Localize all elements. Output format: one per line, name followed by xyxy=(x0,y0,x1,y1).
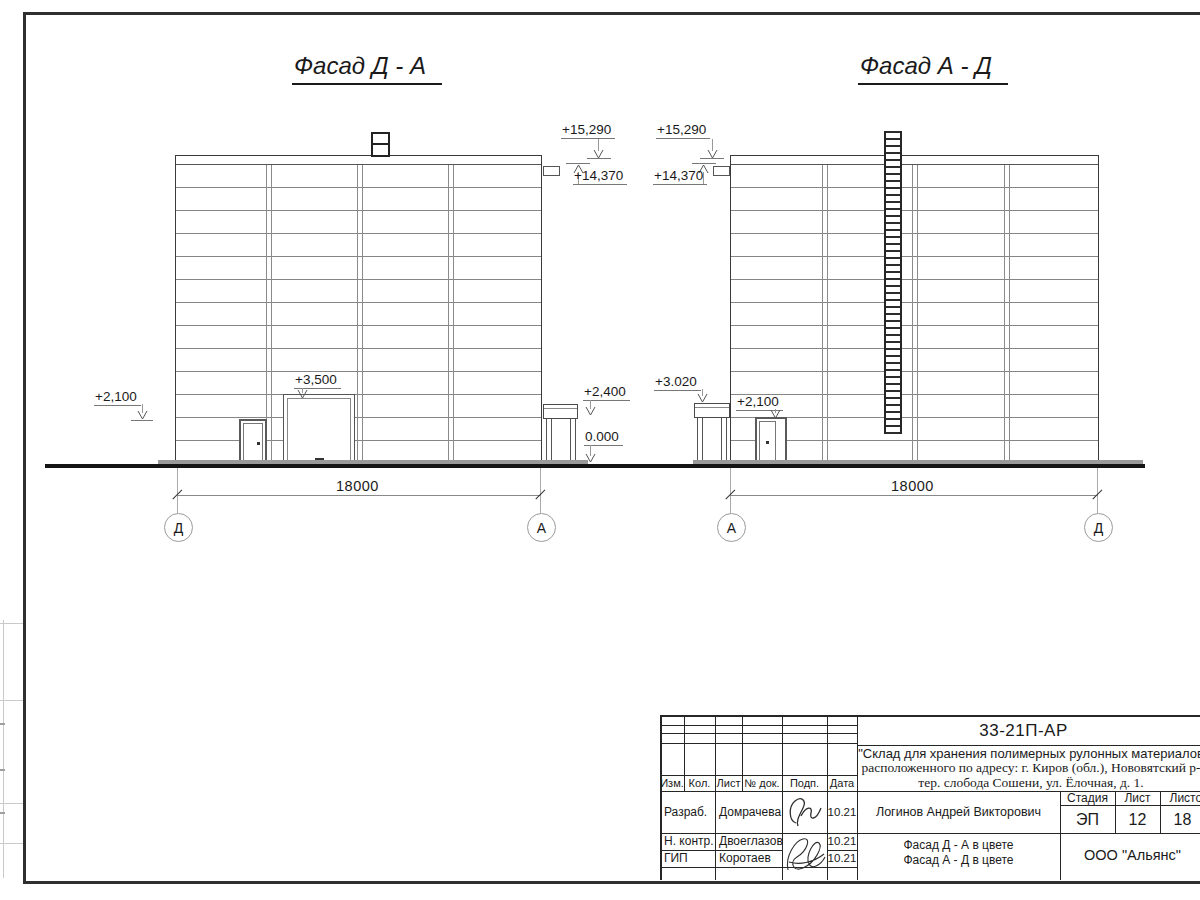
dimension-value: 18000 xyxy=(336,478,379,494)
level-mark: +15,290 xyxy=(561,122,615,139)
level-mark: +2,400 xyxy=(583,384,630,401)
roof-ladder xyxy=(884,131,902,434)
level-line xyxy=(587,158,611,159)
level-arrow-icon xyxy=(297,390,308,399)
stage-value: ЭП xyxy=(1060,805,1115,833)
axis-bubble: Д xyxy=(1084,513,1113,542)
panel-joint xyxy=(448,165,454,466)
side-stamp-line xyxy=(3,620,4,878)
axis-bubble: А xyxy=(717,513,746,542)
level-mark: +3.020 xyxy=(654,374,701,391)
extension-line xyxy=(730,468,731,513)
extension-line xyxy=(177,468,178,513)
signature xyxy=(786,795,826,831)
rev-header-doc: № док. xyxy=(742,775,782,791)
door-leaf xyxy=(243,423,263,464)
gate xyxy=(283,394,355,466)
ground-line xyxy=(45,464,1145,468)
project-name-line2: расположенного по адресу: г. Киров (обл.… xyxy=(857,760,1200,775)
level-arrow-icon xyxy=(697,394,708,403)
door-handle xyxy=(766,441,769,444)
drawing-sheet: Фасад Д - А Фасад А - Д xyxy=(0,0,1200,900)
axis-bubble: Д xyxy=(164,513,193,542)
level-line xyxy=(131,420,153,421)
sheets-header: Листов xyxy=(1160,791,1200,805)
signer-role: Разраб. xyxy=(661,793,718,831)
side-stamp-line xyxy=(0,700,23,701)
signer-name: Двоеглазов xyxy=(716,833,785,850)
panel-joint xyxy=(357,165,363,466)
panel-joint xyxy=(912,165,918,466)
signer-date: 10.21 xyxy=(827,833,857,850)
signer-name: Домрачева xyxy=(716,793,785,831)
level-arrow-icon xyxy=(585,407,596,416)
level-mark: 0.000 xyxy=(584,429,623,446)
rev-header-kol: Кол. xyxy=(684,775,715,791)
facade-left-building xyxy=(175,155,542,467)
canopy-post xyxy=(570,414,576,464)
dimension-value: 18000 xyxy=(891,478,934,494)
dimension-line xyxy=(177,495,541,496)
rooftop-unit-line xyxy=(373,143,388,145)
signer-date: 10.21 xyxy=(827,850,857,867)
signature xyxy=(783,834,829,878)
sheet-value: 12 xyxy=(1115,805,1160,833)
rev-header-izm: Изм. xyxy=(660,775,684,791)
facade-left-title: Фасад Д - А xyxy=(292,52,442,85)
sheet-name-line2: Фасад А - Д в цвете xyxy=(858,851,1059,869)
level-mark: +2,100 xyxy=(94,389,141,406)
company-name: ООО "Альянс" xyxy=(1060,833,1200,878)
level-arrow-icon xyxy=(137,411,148,420)
side-stamp-line xyxy=(0,843,23,844)
project-name-line3: тер. слобода Сошени, ул. Ёлочная, д. 1. xyxy=(857,775,1200,790)
facade-right-title: Фасад А - Д xyxy=(858,52,1008,85)
rev-header-data: Дата xyxy=(827,775,857,791)
side-stamp-mark xyxy=(0,769,5,771)
signer-role: Н. контр. xyxy=(661,833,718,850)
doc-number: 33-21П-АР xyxy=(857,716,1190,745)
vent-pipe xyxy=(543,166,560,176)
approver-name: Логинов Андрей Викторович xyxy=(858,792,1059,832)
sheet-header: Лист xyxy=(1115,791,1160,805)
level-mark: +14,370 xyxy=(573,168,627,185)
level-arrow-icon xyxy=(585,454,596,463)
side-stamp-mark xyxy=(0,723,5,725)
sheets-value: 18 xyxy=(1160,805,1200,833)
panel-joint xyxy=(1004,165,1010,466)
extension-line xyxy=(1097,468,1098,513)
canopy-post xyxy=(697,413,703,464)
side-stamp-mark xyxy=(0,812,5,814)
extension-line xyxy=(540,468,541,513)
stage-header: Стадия xyxy=(1060,791,1115,805)
level-arrow-icon xyxy=(770,410,781,419)
project-name-line1: "Склад для хранения полимерных рулонных … xyxy=(857,746,1200,761)
dimension-line xyxy=(730,495,1098,496)
signer-date: 10.21 xyxy=(827,793,857,831)
side-stamp-line xyxy=(0,623,23,624)
canopy-slab-line xyxy=(544,408,577,409)
vent-pipe xyxy=(713,166,730,176)
level-line xyxy=(700,158,724,159)
canopy-slab xyxy=(694,403,730,418)
rev-header-podp: Подп. xyxy=(782,775,827,791)
facade-right-building xyxy=(730,155,1099,467)
level-mark: +14,370 xyxy=(653,168,707,185)
side-stamp-line xyxy=(0,803,23,804)
canopy-slab xyxy=(543,404,578,419)
rev-header-list: Лист xyxy=(715,775,742,791)
door-handle xyxy=(257,442,260,445)
panel-joint xyxy=(822,165,828,466)
level-mark: +15,290 xyxy=(656,122,710,139)
canopy-post xyxy=(721,413,727,464)
signer-role: ГИП xyxy=(661,850,718,867)
signer-name: Коротаев xyxy=(716,850,785,867)
rooftop-unit xyxy=(371,132,390,157)
canopy-slab-line xyxy=(695,407,729,408)
axis-bubble: А xyxy=(527,513,556,542)
level-mark: +3,500 xyxy=(294,372,341,389)
canopy-post xyxy=(546,414,552,464)
gate-panel xyxy=(287,398,351,462)
